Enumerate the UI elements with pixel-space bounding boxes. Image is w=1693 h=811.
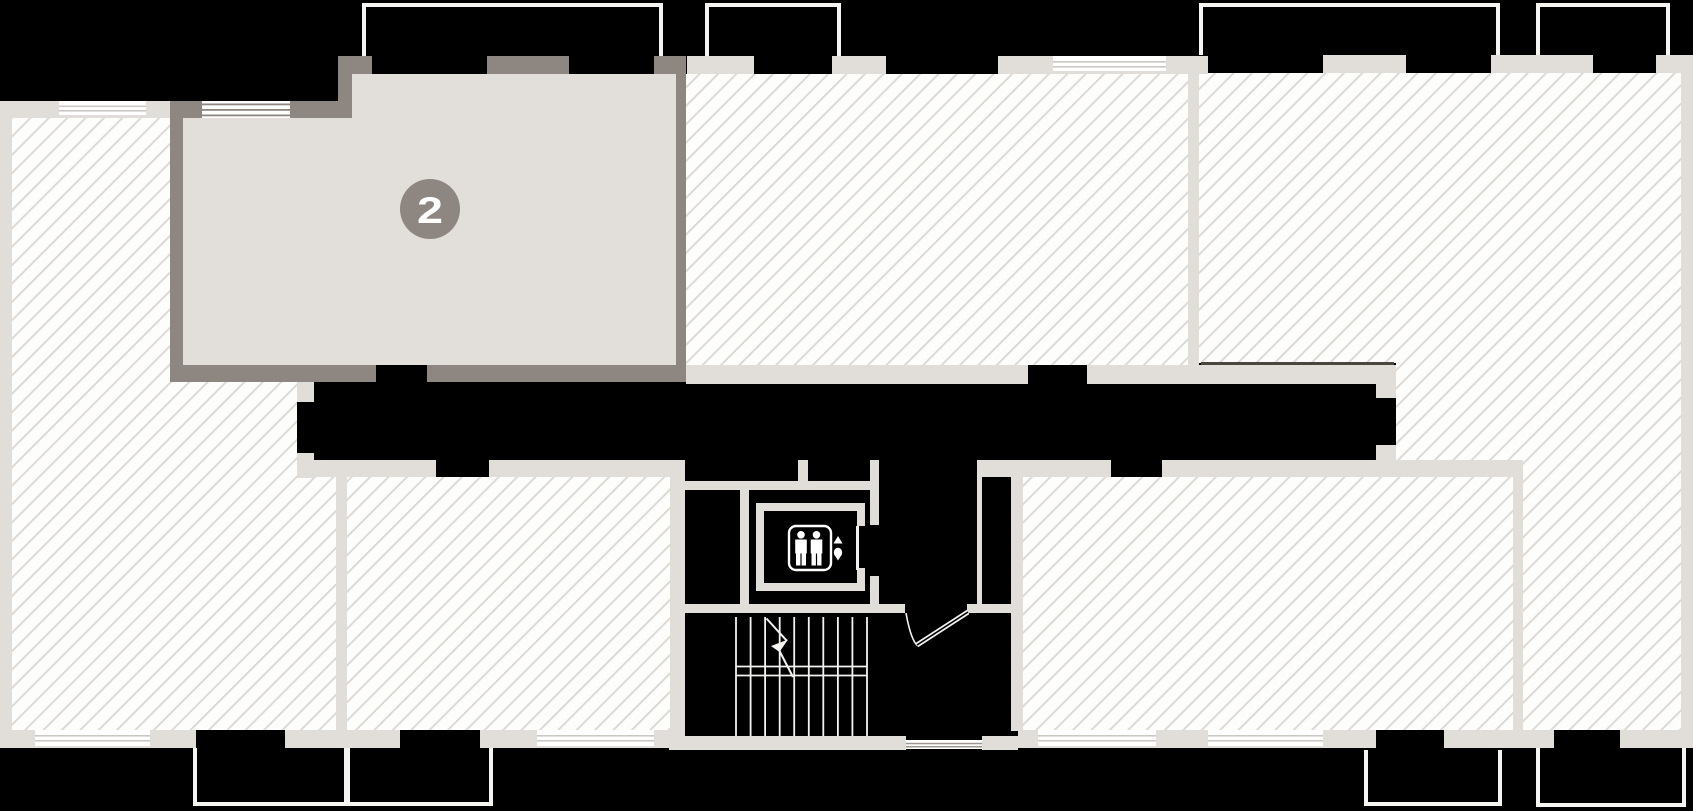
svg-text:2: 2 bbox=[417, 190, 443, 231]
